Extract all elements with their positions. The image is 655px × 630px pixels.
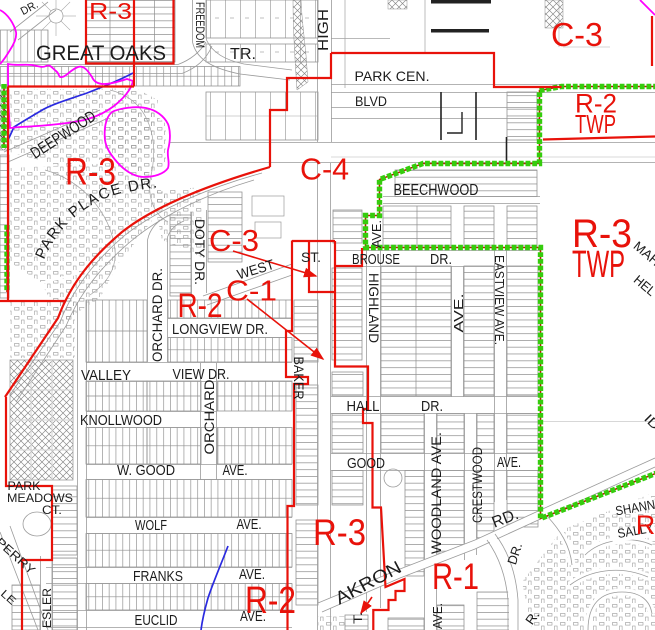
svg-text:ORCHARD: ORCHARD: [201, 380, 217, 455]
svg-text:GOOD: GOOD: [347, 455, 385, 472]
svg-text:W. GOOD: W. GOOD: [117, 462, 175, 479]
svg-text:C-1: C-1: [226, 276, 277, 308]
svg-text:DR.: DR.: [421, 398, 443, 415]
svg-text:R: R: [636, 510, 655, 540]
svg-text:PARK CEN.: PARK CEN.: [355, 68, 430, 84]
svg-text:R-3: R-3: [65, 152, 116, 194]
svg-text:C-3: C-3: [209, 223, 259, 258]
svg-text:AVE.: AVE.: [497, 454, 521, 471]
svg-text:EASTVIEW AVE.: EASTVIEW AVE.: [492, 255, 507, 345]
svg-text:AVE.: AVE.: [237, 516, 262, 533]
svg-text:AVE.: AVE.: [451, 294, 466, 333]
svg-text:R-3: R-3: [313, 512, 366, 553]
svg-text:ST.: ST.: [301, 249, 321, 265]
svg-text:BAKER: BAKER: [291, 357, 307, 400]
svg-text:VALLEY: VALLEY: [81, 367, 131, 384]
svg-text:DR.: DR.: [430, 251, 452, 268]
svg-text:BEECHWOOD: BEECHWOOD: [394, 182, 479, 199]
svg-text:BLVD: BLVD: [355, 93, 387, 109]
svg-text:EUCLID: EUCLID: [135, 612, 178, 629]
svg-text:AVE.: AVE.: [369, 220, 384, 248]
svg-text:CRESTWOOD: CRESTWOOD: [469, 447, 485, 523]
svg-text:DOTY DR.: DOTY DR.: [192, 219, 208, 285]
svg-text:AVE.: AVE.: [223, 462, 248, 479]
svg-text:FREEDOM: FREEDOM: [193, 2, 207, 48]
svg-text:TWP: TWP: [575, 109, 616, 139]
svg-text:TWP: TWP: [572, 244, 625, 286]
svg-text:R-2: R-2: [245, 580, 296, 622]
svg-text:GREAT OAKS: GREAT OAKS: [36, 42, 166, 65]
svg-text:CT.: CT.: [42, 503, 62, 517]
svg-text:WOLF: WOLF: [135, 517, 167, 534]
svg-text:ESLER: ESLER: [40, 588, 54, 628]
svg-text:R-1: R-1: [432, 556, 479, 597]
svg-text:MEADOWS: MEADOWS: [7, 491, 73, 505]
svg-text:ORCHARD DR.: ORCHARD DR.: [149, 268, 165, 362]
svg-text:AVE.: AVE.: [430, 603, 445, 629]
svg-text:C-4: C-4: [300, 152, 349, 187]
svg-text:WOODLAND AVE.: WOODLAND AVE.: [428, 432, 444, 554]
svg-text:BROUSE: BROUSE: [352, 251, 400, 268]
svg-text:R-3: R-3: [89, 0, 132, 24]
svg-text:C-3: C-3: [551, 16, 603, 53]
svg-text:KNOLLWOOD: KNOLLWOOD: [80, 412, 162, 429]
svg-text:TR.: TR.: [230, 46, 256, 63]
svg-text:T.: T.: [351, 612, 365, 624]
svg-text:HIGH: HIGH: [315, 9, 332, 51]
svg-text:FRANKS: FRANKS: [133, 568, 183, 585]
svg-text:HIGHLAND: HIGHLAND: [366, 273, 382, 343]
svg-text:HALL: HALL: [347, 398, 380, 415]
svg-text:R-2: R-2: [178, 287, 223, 325]
